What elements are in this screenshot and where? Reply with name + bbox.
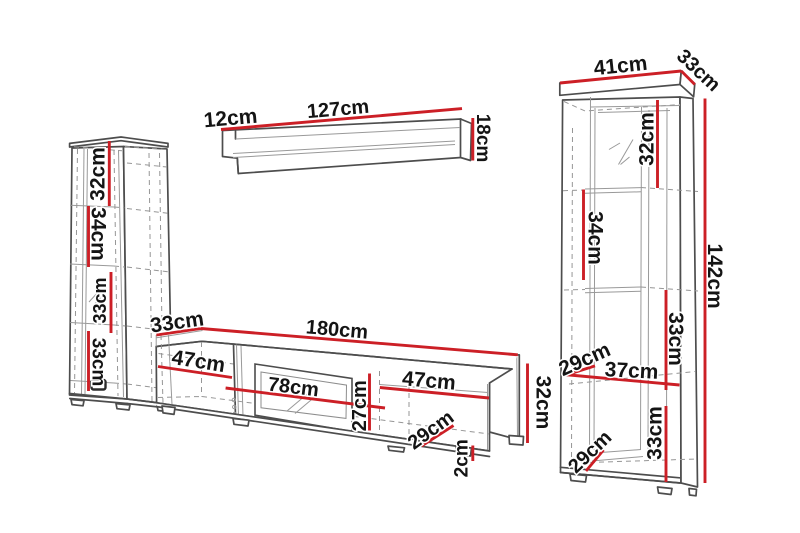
svg-text:47cm: 47cm xyxy=(401,367,457,395)
svg-text:34cm: 34cm xyxy=(87,207,110,261)
svg-text:2cm: 2cm xyxy=(451,439,472,477)
svg-text:33cm: 33cm xyxy=(644,406,667,460)
svg-text:12cm: 12cm xyxy=(203,105,259,133)
svg-text:37cm: 37cm xyxy=(604,358,659,384)
svg-text:18cm: 18cm xyxy=(472,114,493,163)
svg-text:33cm: 33cm xyxy=(664,312,687,366)
svg-text:32cm: 32cm xyxy=(636,112,659,166)
svg-text:142cm: 142cm xyxy=(703,243,726,308)
svg-text:32cm: 32cm xyxy=(532,376,555,430)
svg-text:34cm: 34cm xyxy=(584,211,607,265)
svg-text:33cm: 33cm xyxy=(88,338,109,387)
svg-text:32cm: 32cm xyxy=(87,147,110,201)
svg-text:27cm: 27cm xyxy=(349,380,371,431)
svg-text:33cm: 33cm xyxy=(90,277,110,323)
